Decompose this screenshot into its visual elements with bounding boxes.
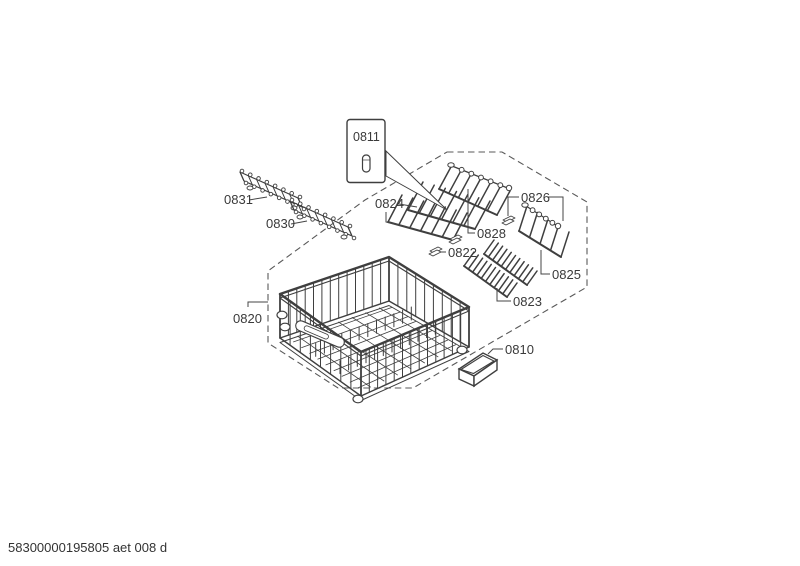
leader-0810: [488, 349, 503, 354]
leader-0826-a: [508, 197, 519, 216]
exploded-parts-diagram: 0811 0831 0830 0824 0826 0828 0822 0825 …: [0, 0, 800, 566]
part-label-0811: 0811: [353, 130, 380, 144]
part-label-0826: 0826: [521, 190, 550, 205]
part-label-0831: 0831: [224, 192, 253, 207]
leader-0820: [248, 302, 268, 307]
part-0826-bearing-clip: [502, 216, 515, 225]
callout-0811-box: [347, 120, 385, 183]
part-label-0825: 0825: [552, 267, 581, 282]
part-0820-lower-basket: [277, 257, 469, 403]
part-0825-folding-tine-row: [519, 203, 569, 257]
part-label-0823: 0823: [513, 294, 542, 309]
part-labels: 0831 0830 0824 0826 0828 0822 0825 0823 …: [224, 190, 581, 357]
parts-diagram-page: 0811 0831 0830 0824 0826 0828 0822 0825 …: [0, 0, 800, 566]
part-label-0810: 0810: [505, 342, 534, 357]
part-label-0828: 0828: [477, 226, 506, 241]
part-label-0830: 0830: [266, 216, 295, 231]
document-number: 58300000195805 aet 008 d: [8, 540, 167, 555]
cap-part-thumbnail: [363, 155, 371, 172]
part-label-0820: 0820: [233, 311, 262, 326]
part-0830-insert-rail: [290, 198, 356, 240]
leader-0825: [541, 250, 550, 274]
part-0828-folding-tine-row: [439, 163, 512, 215]
part-label-0824: 0824: [375, 196, 404, 211]
part-label-0822: 0822: [448, 245, 477, 260]
